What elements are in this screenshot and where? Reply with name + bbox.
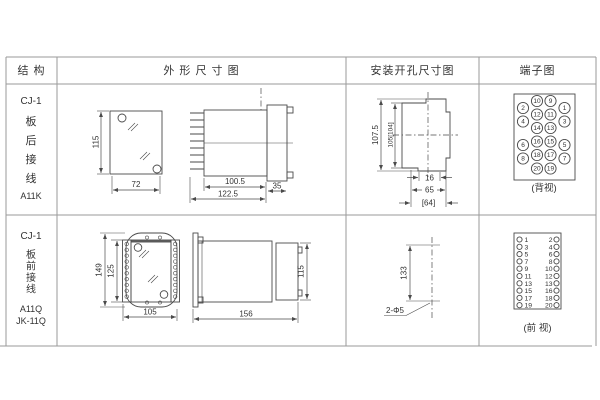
relay-case-outline [131,240,171,302]
terminal-number: 11 [547,112,554,119]
strip-screw [173,277,177,281]
terminal-circle [554,252,559,257]
dim-cut-outer-label: 107.5 [371,124,380,145]
dim-total-label: 122.5 [218,190,239,199]
glass-hatch [128,123,150,160]
terminal-circles-back: 1091211141316151817201921436587 [517,95,570,174]
rear-block-outline [276,243,298,300]
flange-screw-hole [158,301,161,304]
row1-wiring-1: 板 [26,114,37,128]
row2-install-view: 133 2-Φ5 [384,237,440,318]
row2-model: CJ-1 [20,231,42,242]
terminal-number: 17 [525,295,533,302]
terminal-number: 2 [549,237,553,244]
dim-cut-inner-label: 105[104] [388,122,395,147]
flange-tab [287,172,293,178]
dim-width-label: 72 [132,180,141,189]
terminal-number: 5 [525,252,529,259]
strip-screw [173,266,177,270]
row1-wiring-3: 接 [26,153,37,166]
terminal-circle [554,237,559,242]
strip-screw [173,289,177,293]
row2-wiring-3: 接 [26,271,36,284]
relay-dimension-drawing: 结 构 外 形 尺 寸 图 安装开孔尺寸图 端子图 CJ-1 板 后 接 线 A… [0,0,600,400]
terminal-number: 7 [563,156,567,163]
dim-height-label: 115 [92,135,101,148]
terminal-number: 4 [521,119,525,126]
terminal-number: 15 [547,139,555,146]
strip-screw [125,266,129,270]
terminal-circle [517,281,522,286]
terminal-circle [554,244,559,249]
mounting-hole [118,114,126,122]
row2-wiring-1: 板 [26,248,36,261]
mounting-hole [153,165,161,173]
strip-screw [173,260,177,264]
strip-screw [125,248,129,252]
terminal-number: 20 [533,166,541,173]
terminal-circle [554,303,559,308]
mounting-hole [134,244,142,252]
table-header: 结 构 外 形 尺 寸 图 安装开孔尺寸图 端子图 [17,63,555,77]
terminal-number: 18 [545,295,553,302]
terminal-number: 13 [525,281,533,288]
terminal-circles-front: 1234567891011121313151617181920 [517,237,559,310]
dim-hole-span-label: 133 [400,266,409,280]
row2-wiring-4: 线 [26,283,36,296]
row1-side-view: 100.5 35 122.5 [190,88,293,203]
terminal-number: 8 [549,259,553,266]
terminal-number: 10 [533,98,541,105]
terminal-number: 2 [521,105,525,112]
dim-notch-label: 16 [425,174,434,183]
terminal-circle [554,295,559,300]
header-install: 安装开孔尺寸图 [371,63,455,77]
view-label-back: (背视) [531,182,556,194]
strip-screw [125,254,129,258]
terminal-number: 9 [525,266,529,273]
strip-screw [173,254,177,258]
flange-screw-hole [145,236,148,239]
terminal-number: 12 [545,274,553,281]
terminal-number: 6 [521,142,525,149]
terminal-circle [554,266,559,271]
relay-front-outline [110,111,162,174]
header-outline: 外 形 尺 寸 图 [163,63,239,77]
dim-height-label: 149 [95,263,104,277]
strip-screw [173,271,177,275]
row1-model: CJ-1 [20,96,42,107]
dim-length-label: 156 [239,310,253,319]
strip-screw [125,271,129,275]
terminal-number: 16 [533,139,541,146]
row1-wiring-4: 线 [26,171,37,185]
dim-inner-height-label: 125 [107,264,116,278]
strip-screw [173,283,177,287]
dim-body-label: 100.5 [225,177,246,186]
terminal-number: 8 [521,156,525,163]
rear-tab [298,290,302,296]
view-label-front: (前 视) [524,322,552,334]
leader-line [406,303,430,316]
terminal-number: 4 [549,244,553,251]
row2-terminal-view: 1234567891011121313151617181920 (前 视) [514,233,561,334]
terminal-circle [517,244,522,249]
terminal-number: 7 [525,259,529,266]
row1-front-view: 115 72 [92,111,163,194]
flange-plate [193,233,198,307]
terminal-circle [554,281,559,286]
terminal-number: 19 [547,166,555,173]
terminal-number: 12 [533,112,541,119]
terminal-number: 19 [525,303,533,310]
flange-tab [287,107,293,113]
terminal-circle [517,288,522,293]
terminal-number: 1 [525,237,529,244]
relay-body-outline [198,241,272,302]
terminal-circle [517,273,522,278]
terminal-circle [554,259,559,264]
row2-front-view: 149 125 105 [95,233,180,321]
rear-tab [298,247,302,253]
strip-screws-right [173,242,177,298]
case-top-band [131,240,171,243]
dim-width-label: 105 [143,308,157,317]
row2-side-view: 115 156 [193,233,311,323]
header-terminal: 端子图 [520,64,556,77]
terminal-number: 18 [533,152,541,159]
hole-note-label: 2-Φ5 [386,306,404,315]
row2-code: A11Q [20,304,42,314]
terminal-number: 9 [549,98,553,105]
strip-screw [125,289,129,293]
row1-code: A11K [20,191,41,201]
terminal-number: 15 [525,288,533,295]
terminal-number: 14 [533,125,541,132]
terminal-circle [517,259,522,264]
flange-screw-hole [158,236,161,239]
dim-flange-label: 35 [273,182,282,191]
row1-wiring-2: 后 [26,134,37,147]
terminal-number: 20 [545,303,553,310]
terminal-number: 13 [545,281,553,288]
terminal-number: 5 [563,142,567,149]
strip-screw [125,277,129,281]
terminal-number: 3 [563,119,567,126]
terminal-number: 11 [525,274,532,281]
mounting-hole [160,291,168,299]
datasheet-page: 结 构 外 形 尺 寸 图 安装开孔尺寸图 端子图 CJ-1 板 后 接 线 A… [0,0,600,400]
terminal-circle [517,252,522,257]
row1-terminal-view: 1091211141316151817201921436587 (背视) [514,94,575,194]
strip-screws-left [125,242,129,298]
dim-cut-alt-label: [64] [422,199,435,208]
terminal-number: 13 [547,125,555,132]
strip-screw [173,248,177,252]
header-structure: 结 构 [17,63,45,77]
row2-structure: CJ-1 板 前 接 线 A11Q JK-11Q [16,231,46,326]
terminal-circle [554,288,559,293]
row2-wiring-2: 前 [26,260,36,273]
dim-cut-width-label: 65 [425,186,434,195]
terminal-circle [517,237,522,242]
terminal-pins [190,113,204,169]
mounting-flange-outline [126,233,177,307]
terminal-number: 3 [525,244,529,251]
dim-side-height-label: 115 [297,265,306,278]
terminal-number: 16 [545,288,553,295]
glass-hatch [139,250,158,283]
terminal-circle [554,273,559,278]
terminal-circle [517,295,522,300]
terminal-number: 17 [547,152,555,159]
flange-screw-hole [145,301,148,304]
terminal-circle [517,266,522,271]
terminal-circle [517,303,522,308]
terminal-number: 6 [549,252,553,259]
terminal-number: 1 [563,105,567,112]
row2-code-2: JK-11Q [16,316,46,326]
strip-screw [125,283,129,287]
strip-screw [125,260,129,264]
row1-install-view: 107.5 105[104] 16 65 [64] [371,92,458,208]
terminal-number: 10 [545,266,553,273]
row1-structure: CJ-1 板 后 接 线 A11K [20,96,42,201]
